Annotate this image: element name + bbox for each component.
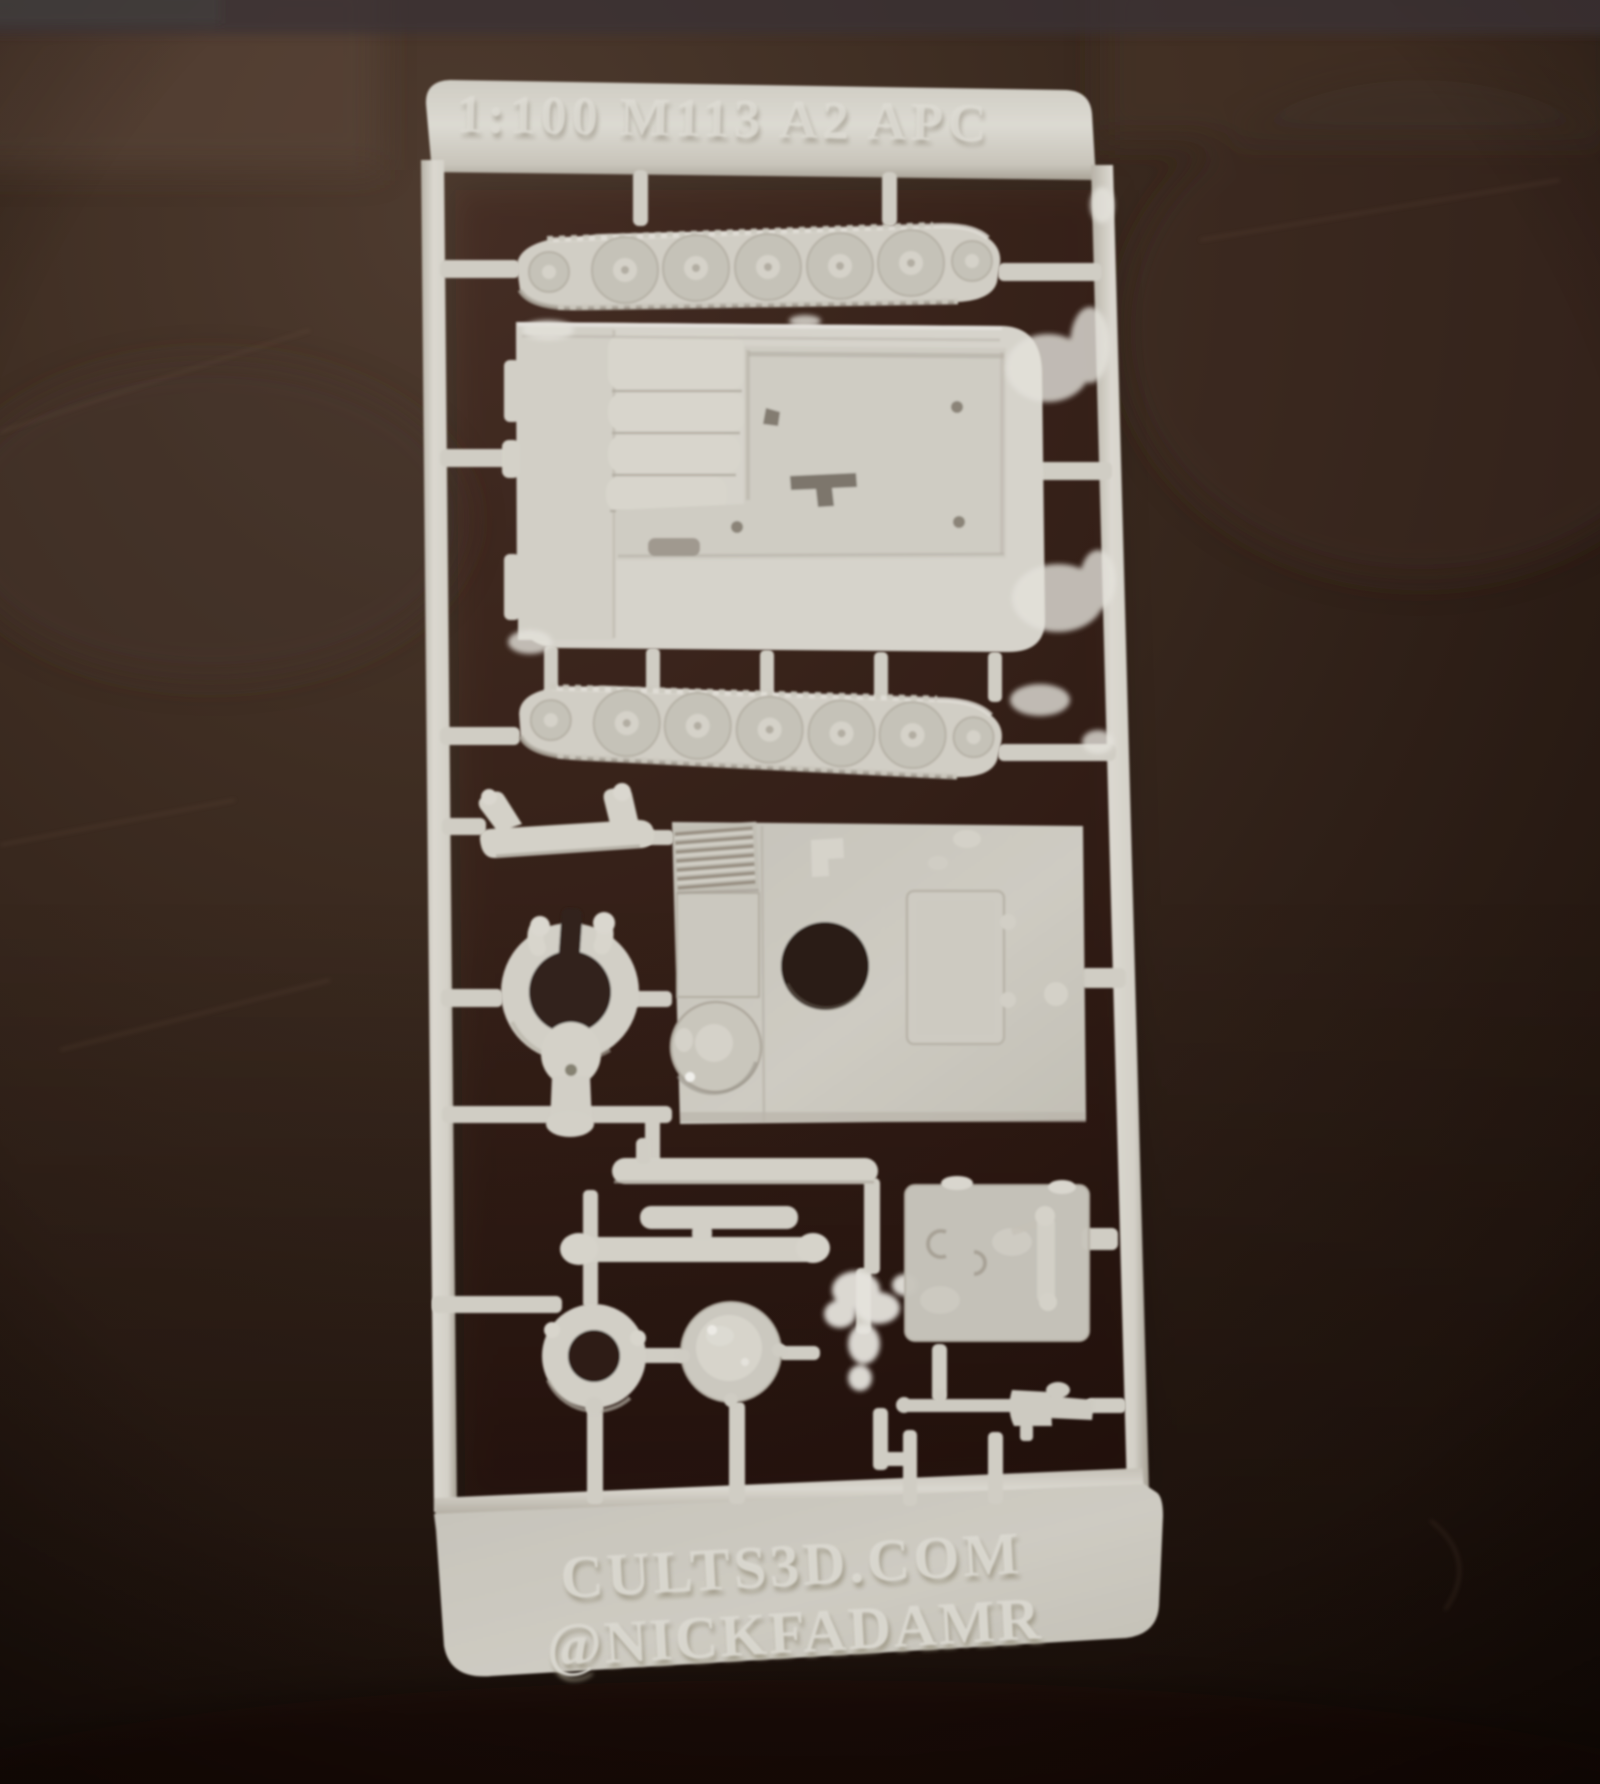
svg-text:1:100 M113 A2 APC: 1:100 M113 A2 APC [456,84,991,153]
